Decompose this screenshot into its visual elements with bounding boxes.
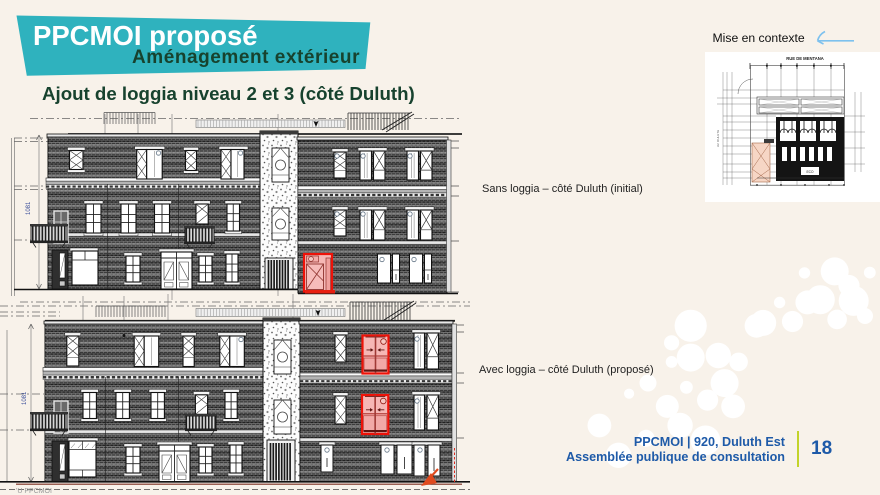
svg-text:1081: 1081	[22, 391, 28, 405]
svg-text:ECO: ECO	[807, 170, 814, 174]
svg-text:RUE DE MENTANA: RUE DE MENTANA	[786, 56, 824, 61]
svg-text:1081: 1081	[26, 201, 32, 215]
svg-text:'U PPCMOI: 'U PPCMOI	[16, 488, 52, 495]
svg-text:AV. DULUTH: AV. DULUTH	[716, 130, 720, 147]
